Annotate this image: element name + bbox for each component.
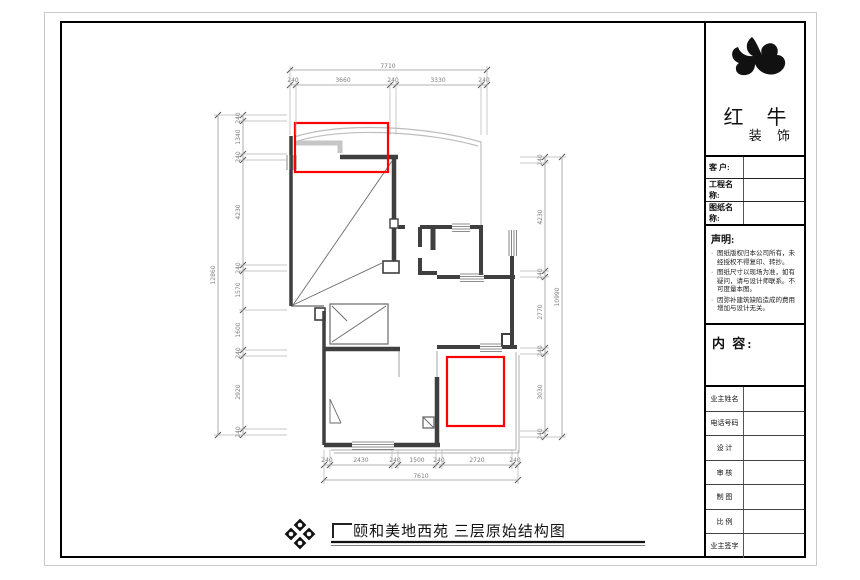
statement-title: 声明: <box>711 231 800 246</box>
dim-label: 2920 <box>235 384 242 399</box>
dim-label: 240 <box>537 268 544 280</box>
field-row-project-name: 工程名称: <box>706 178 804 201</box>
company-logo-cell: 红 牛 装 饰 <box>706 23 804 155</box>
dim-label: 4230 <box>537 209 544 224</box>
dim-label: 1600 <box>235 322 242 337</box>
plan-detail-lines <box>293 161 437 428</box>
highlight-rectangles <box>295 123 504 426</box>
statement-text: 图纸版权归本公司所有，未经授权不得复印、转抄。 <box>717 250 800 267</box>
dim-label: 1340 <box>235 129 242 144</box>
statement-text: 图纸尺寸以现场为准，如有疑问，请与设计师联系。不可度量本图。 <box>717 269 800 295</box>
info-label: 业主签字 <box>706 534 744 558</box>
dim-label: 240 <box>235 347 242 359</box>
dim-top-overall: 7710 <box>380 63 395 70</box>
field-value-blank <box>744 157 804 178</box>
info-label: 业主姓名 <box>706 387 744 411</box>
drawing-title: 颐和美地西苑 三层原始结构图 <box>352 520 567 540</box>
dim-label: 240 <box>537 345 544 357</box>
content-section: 内 容: <box>706 323 804 385</box>
info-value-blank <box>744 485 804 509</box>
existing-wall-topleft <box>295 143 340 153</box>
dim-label: 2720 <box>469 457 484 464</box>
dim-label: 240 <box>387 77 399 84</box>
brand-subname: 装 饰 <box>749 125 796 144</box>
info-row-scale: 比 例 <box>706 509 804 534</box>
info-row-design: 设 计 <box>706 435 804 460</box>
info-value-blank <box>744 412 804 436</box>
dim-label: 240 <box>235 262 242 274</box>
dim-label: 240 <box>287 77 299 84</box>
highlight-bottom-right <box>447 357 504 426</box>
statement-item: · 图纸版权归本公司所有，未经授权不得复印、转抄。 <box>711 250 800 267</box>
dim-label: 3330 <box>430 77 445 84</box>
info-row-drafting: 制 图 <box>706 484 804 509</box>
field-value-blank <box>744 202 804 224</box>
dim-label: 1570 <box>235 282 242 297</box>
dim-label: 4230 <box>235 204 242 219</box>
dim-label: 1500 <box>409 457 424 464</box>
dim-bottom-overall: 7610 <box>413 473 428 480</box>
dim-label: 240 <box>235 112 242 124</box>
section-bracket-icon <box>333 524 352 538</box>
field-row-drawing-name: 图纸名称: <box>706 201 804 224</box>
info-label: 电话号码 <box>706 412 744 436</box>
info-row-review: 审 核 <box>706 460 804 485</box>
info-row-owner-name: 业主姓名 <box>706 387 804 411</box>
info-label: 设 计 <box>706 436 744 460</box>
dim-label: 240 <box>321 457 333 464</box>
dim-label: 240 <box>537 428 544 440</box>
dim-label: 240 <box>509 457 521 464</box>
info-label: 审 核 <box>706 461 744 485</box>
info-table: 业主姓名 电话号码 设 计 审 核 制 图 比 例 <box>706 385 804 558</box>
title-underline <box>331 542 645 546</box>
structural-walls <box>291 136 517 445</box>
info-label: 制 图 <box>706 485 744 509</box>
dim-label: 240 <box>235 426 242 438</box>
drawing-sheet: 7710 240 3660 240 3330 240 240 2430 240 … <box>0 0 860 580</box>
dim-label: 3660 <box>335 77 350 84</box>
dim-label: 240 <box>478 77 490 84</box>
dim-left-overall: 12860 <box>210 265 217 284</box>
dim-right-overall: 10990 <box>554 287 561 306</box>
field-row-customer: 客 户: <box>706 155 804 178</box>
dim-label: 240 <box>235 151 242 163</box>
info-value-blank <box>744 510 804 534</box>
window-hatches <box>287 155 517 450</box>
title-block: 红 牛 装 饰 客 户: 工程名称: 图纸名称: 声明: · 图纸版权归本公司所… <box>704 23 804 556</box>
dim-label: 2430 <box>353 457 368 464</box>
dim-label: 240 <box>537 154 544 166</box>
dim-label: 3030 <box>537 384 544 399</box>
info-value-blank <box>744 461 804 485</box>
statement-section: 声明: · 图纸版权归本公司所有，未经授权不得复印、转抄。 · 图纸尺寸以现场为… <box>706 224 804 323</box>
info-value-blank <box>744 436 804 460</box>
field-label: 工程名称: <box>706 179 744 201</box>
field-label: 客 户: <box>706 157 744 178</box>
statement-item: · 图纸尺寸以现场为准，如有疑问，请与设计师联系。不可度量本图。 <box>711 269 800 295</box>
info-label: 比 例 <box>706 510 744 534</box>
info-row-owner-signature: 业主签字 <box>706 533 804 558</box>
dim-label: 240 <box>433 457 445 464</box>
dim-label: 240 <box>389 457 401 464</box>
dim-label: 2770 <box>537 304 544 319</box>
field-value-blank <box>744 179 804 201</box>
terrace-outline <box>294 128 519 453</box>
field-label: 图纸名称: <box>706 202 744 224</box>
statement-item: · 因弥补建筑缺陷造成的费用增加与设计无关。 <box>711 297 800 314</box>
info-value-blank <box>744 387 804 411</box>
statement-text: 因弥补建筑缺陷造成的费用增加与设计无关。 <box>717 297 800 314</box>
redbull-logo-icon <box>722 33 790 95</box>
diamond-ornament-icon <box>285 519 316 550</box>
content-label: 内 容: <box>712 333 804 352</box>
info-row-phone: 电话号码 <box>706 411 804 436</box>
info-value-blank <box>744 534 804 558</box>
